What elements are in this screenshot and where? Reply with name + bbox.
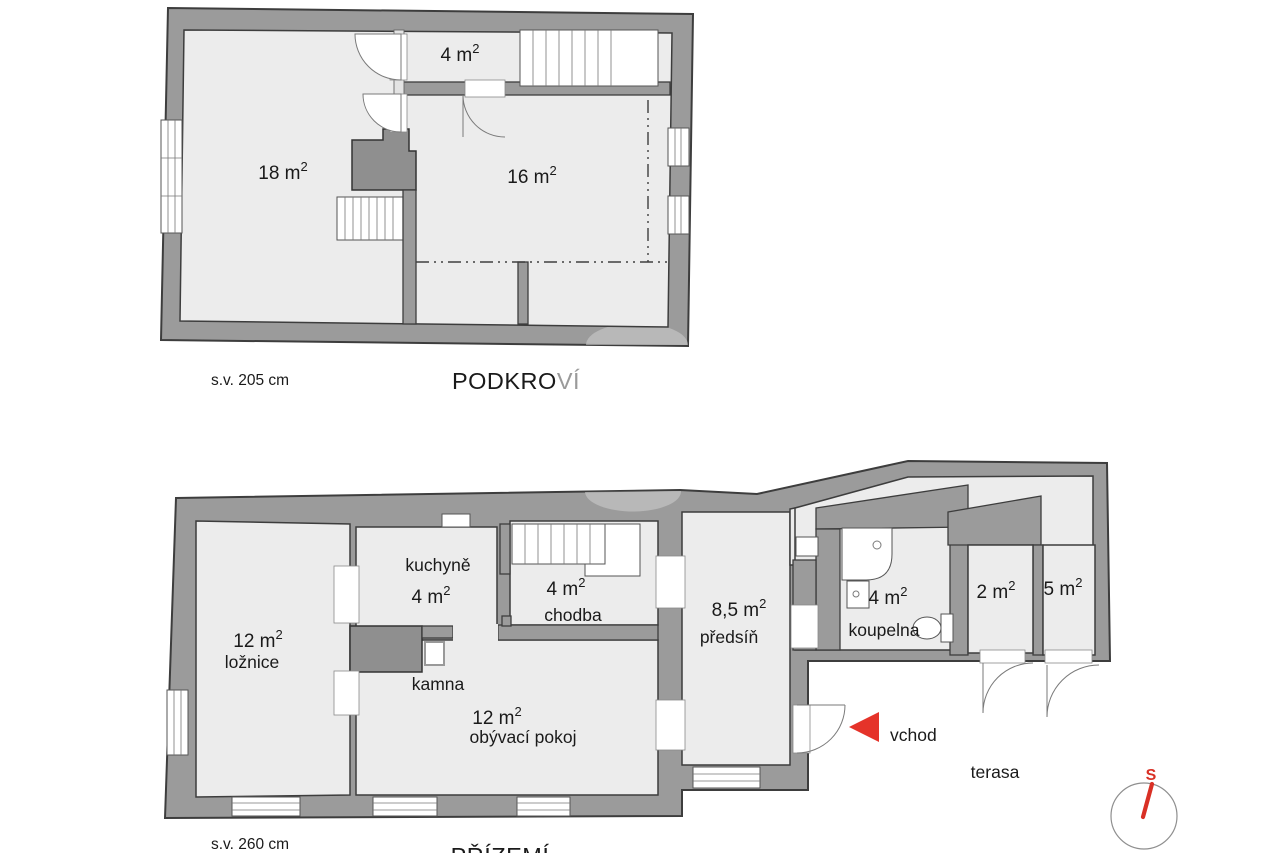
terrace-label: terasa bbox=[971, 762, 1020, 782]
floor-plan-page: 18 m2 16 m2 4 m2 s.v. 205 cm PODKROVÍ bbox=[0, 0, 1280, 853]
room-name-label: obývací pokoj bbox=[469, 727, 576, 747]
bathtub bbox=[842, 528, 892, 580]
floor-plan-canvas: 18 m2 16 m2 4 m2 s.v. 205 cm PODKROVÍ bbox=[0, 0, 1280, 853]
window bbox=[668, 128, 689, 166]
window bbox=[373, 797, 437, 816]
room-name-label: ložnice bbox=[225, 652, 279, 672]
compass-north-label: S bbox=[1146, 767, 1157, 784]
door-gap-living-entry bbox=[656, 700, 685, 750]
stairs-stub-wall bbox=[500, 524, 510, 574]
room-area-label: 8,5 m2 bbox=[712, 596, 767, 621]
window bbox=[232, 797, 300, 816]
room-name-label: předsíň bbox=[700, 627, 758, 647]
water-heater bbox=[796, 537, 818, 556]
stove-label: kamna bbox=[412, 674, 465, 694]
attic-staircase bbox=[520, 30, 658, 86]
stove-wall bbox=[422, 626, 453, 638]
room-name-label: chodba bbox=[544, 605, 602, 625]
bathroom-door-gap bbox=[791, 605, 818, 648]
entrance-label: vchod bbox=[890, 725, 937, 745]
room-name-label: kuchyně bbox=[405, 555, 470, 575]
room-kitchen bbox=[356, 527, 497, 627]
kitchen-living-opening bbox=[453, 624, 498, 642]
compass-needle bbox=[1143, 784, 1152, 817]
bathroom-left-wall bbox=[816, 529, 840, 650]
stove bbox=[425, 642, 444, 665]
ground-plan: S 12 m2 ložnice kuchyně 4 m2 4 m2 chodba… bbox=[165, 461, 1177, 853]
door-gap-hallway-entry bbox=[656, 556, 685, 608]
room-area-label: 12 m2 bbox=[233, 627, 282, 652]
window bbox=[161, 120, 182, 233]
window bbox=[167, 690, 188, 755]
window bbox=[668, 196, 689, 234]
attic-plan: 18 m2 16 m2 4 m2 s.v. 205 cm PODKROVÍ bbox=[161, 8, 693, 394]
room-closet-5 bbox=[1043, 545, 1095, 655]
attic-title: PODKROVÍ bbox=[452, 368, 580, 394]
room-area-label: 18 m2 bbox=[258, 159, 307, 184]
window bbox=[693, 767, 760, 788]
ceiling-height-note: s.v. 260 cm bbox=[211, 836, 289, 853]
window bbox=[442, 514, 470, 527]
wall-stub bbox=[502, 616, 511, 626]
entrance-arrow-icon bbox=[849, 712, 879, 742]
window bbox=[517, 797, 570, 816]
sink bbox=[847, 581, 869, 608]
room-name-label: koupelna bbox=[848, 620, 919, 640]
hallway-living-wall bbox=[498, 625, 658, 640]
closet5-door-gap bbox=[1045, 650, 1092, 663]
attic-wall-stub bbox=[518, 262, 528, 324]
entrance-door-gap bbox=[793, 705, 810, 753]
ceiling-height-note: s.v. 205 cm bbox=[211, 372, 289, 389]
door-gap-bedroom-kitchen bbox=[334, 566, 359, 623]
ground-chimney bbox=[350, 626, 422, 672]
attic-wall-vertical bbox=[403, 190, 416, 324]
door-gap bbox=[465, 80, 505, 97]
closet2-door-swing bbox=[983, 663, 1033, 713]
room-area-label: 16 m2 bbox=[507, 163, 556, 188]
closet2-door-gap bbox=[980, 650, 1025, 663]
room-area-label: 12 m2 bbox=[472, 704, 521, 729]
ground-title: PŘÍZEMÍ bbox=[451, 843, 550, 853]
compass: S bbox=[1111, 767, 1177, 849]
door-gap-bedroom-living bbox=[334, 671, 359, 715]
attic-mid-staircase bbox=[337, 197, 405, 240]
closet5-door-swing bbox=[1047, 665, 1099, 717]
closet-divider-wall bbox=[1033, 545, 1043, 655]
